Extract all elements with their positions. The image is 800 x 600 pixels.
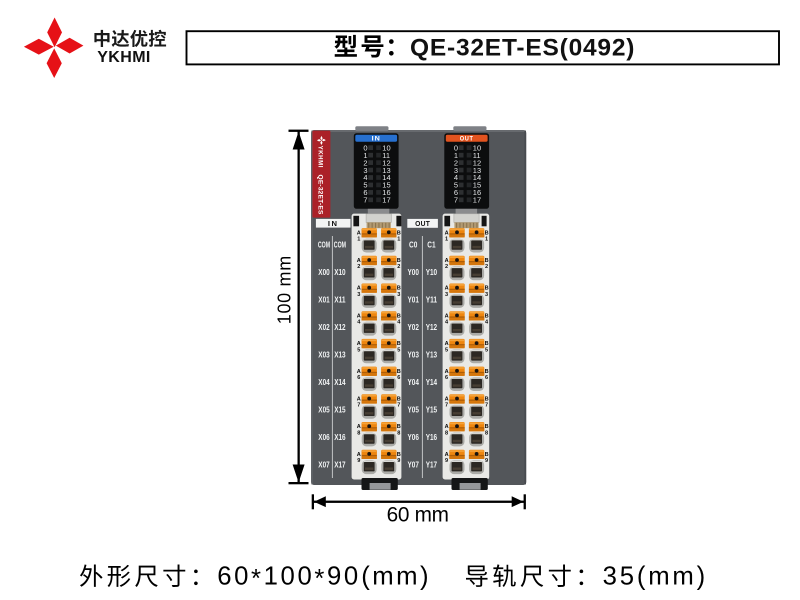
svg-text:X12: X12 bbox=[334, 323, 346, 332]
svg-text:B: B bbox=[397, 313, 401, 319]
svg-text:B: B bbox=[397, 452, 401, 458]
svg-text:X02: X02 bbox=[318, 323, 330, 332]
svg-text:Y02: Y02 bbox=[408, 323, 420, 332]
svg-text:B: B bbox=[397, 397, 401, 403]
svg-text:Y12: Y12 bbox=[426, 323, 438, 332]
svg-text:X00: X00 bbox=[318, 268, 330, 277]
svg-text:B: B bbox=[485, 286, 489, 292]
svg-text:3: 3 bbox=[357, 292, 360, 298]
svg-text:A: A bbox=[445, 424, 449, 430]
svg-text:B: B bbox=[485, 313, 489, 319]
svg-text:3: 3 bbox=[445, 292, 448, 298]
svg-text:A: A bbox=[357, 424, 361, 430]
svg-text:Y16: Y16 bbox=[426, 433, 438, 442]
svg-text:9: 9 bbox=[397, 458, 400, 464]
svg-text:X01: X01 bbox=[318, 296, 330, 305]
svg-text:B: B bbox=[485, 341, 489, 347]
svg-text:Y13: Y13 bbox=[426, 350, 438, 359]
svg-text:B: B bbox=[397, 258, 401, 264]
svg-text:A: A bbox=[357, 286, 361, 292]
svg-text:9: 9 bbox=[485, 458, 488, 464]
svg-text:8: 8 bbox=[357, 430, 360, 436]
svg-text:35(mm): 35(mm) bbox=[603, 563, 706, 591]
svg-text:A: A bbox=[445, 452, 449, 458]
svg-text:1: 1 bbox=[485, 237, 488, 243]
svg-text:9: 9 bbox=[357, 458, 360, 464]
svg-text:8: 8 bbox=[485, 430, 488, 436]
svg-text:Y04: Y04 bbox=[408, 378, 420, 387]
svg-text:B: B bbox=[485, 369, 489, 375]
svg-text:X10: X10 bbox=[334, 268, 346, 277]
svg-text:17: 17 bbox=[473, 196, 481, 205]
svg-text:7: 7 bbox=[397, 403, 400, 409]
svg-text:A: A bbox=[357, 452, 361, 458]
svg-text:60 mm: 60 mm bbox=[387, 504, 449, 527]
svg-text:X06: X06 bbox=[318, 433, 330, 442]
svg-text:1: 1 bbox=[445, 237, 448, 243]
svg-text:Y03: Y03 bbox=[408, 350, 420, 359]
svg-text:B: B bbox=[397, 341, 401, 347]
svg-text:A: A bbox=[357, 230, 361, 236]
svg-text:6: 6 bbox=[485, 375, 488, 381]
svg-text:QE-32ET-ES: QE-32ET-ES bbox=[317, 175, 324, 216]
svg-text:Y14: Y14 bbox=[426, 378, 438, 387]
svg-text:9: 9 bbox=[445, 458, 448, 464]
svg-text:B: B bbox=[485, 452, 489, 458]
svg-text:8: 8 bbox=[445, 430, 448, 436]
svg-text:(mm): (mm) bbox=[361, 563, 428, 591]
svg-text:6: 6 bbox=[445, 375, 448, 381]
svg-text:Y11: Y11 bbox=[426, 296, 438, 305]
svg-text:Y01: Y01 bbox=[408, 296, 420, 305]
svg-text:Y00: Y00 bbox=[408, 268, 420, 277]
svg-text:7: 7 bbox=[357, 403, 360, 409]
svg-text:Y15: Y15 bbox=[426, 405, 438, 414]
svg-text:X03: X03 bbox=[318, 350, 330, 359]
svg-text:3: 3 bbox=[397, 292, 400, 298]
svg-text:A: A bbox=[445, 397, 449, 403]
svg-text:Y05: Y05 bbox=[408, 405, 420, 414]
svg-text:YKHMI: YKHMI bbox=[97, 49, 151, 66]
svg-text:6: 6 bbox=[397, 375, 400, 381]
svg-text:B: B bbox=[485, 397, 489, 403]
svg-text:Y07: Y07 bbox=[408, 460, 420, 469]
svg-text:B: B bbox=[485, 258, 489, 264]
svg-text:X16: X16 bbox=[334, 433, 346, 442]
svg-text:7: 7 bbox=[485, 403, 488, 409]
svg-text:X14: X14 bbox=[334, 378, 346, 387]
svg-text:IN: IN bbox=[328, 219, 339, 228]
svg-text:60*100*90: 60*100*90 bbox=[217, 563, 358, 593]
svg-text:7: 7 bbox=[445, 403, 448, 409]
svg-text:X07: X07 bbox=[318, 460, 330, 469]
svg-text:7: 7 bbox=[454, 196, 458, 205]
svg-text:A: A bbox=[357, 369, 361, 375]
svg-text:A: A bbox=[445, 258, 449, 264]
svg-text:1: 1 bbox=[397, 237, 400, 243]
svg-text:COM: COM bbox=[334, 241, 346, 250]
svg-text:OUT: OUT bbox=[415, 219, 430, 228]
svg-text:100 mm: 100 mm bbox=[274, 256, 294, 325]
svg-text:2: 2 bbox=[357, 264, 360, 270]
svg-text:5: 5 bbox=[397, 347, 400, 353]
svg-text:2: 2 bbox=[397, 264, 400, 270]
svg-text:X04: X04 bbox=[318, 378, 330, 387]
svg-text:A: A bbox=[445, 286, 449, 292]
svg-text:QE-32ET-ES(0492): QE-32ET-ES(0492) bbox=[410, 34, 635, 61]
svg-text:YKHMI: YKHMI bbox=[317, 146, 324, 168]
svg-text:8: 8 bbox=[397, 430, 400, 436]
svg-text:OUT: OUT bbox=[460, 136, 474, 143]
svg-text:C1: C1 bbox=[427, 241, 436, 250]
svg-text:C0: C0 bbox=[409, 241, 418, 250]
svg-text:Y10: Y10 bbox=[426, 268, 438, 277]
svg-text:A: A bbox=[445, 341, 449, 347]
svg-text:A: A bbox=[445, 313, 449, 319]
svg-text:X17: X17 bbox=[334, 460, 346, 469]
svg-text:B: B bbox=[485, 424, 489, 430]
svg-text:B: B bbox=[397, 369, 401, 375]
svg-text:Y06: Y06 bbox=[408, 433, 420, 442]
svg-text:5: 5 bbox=[445, 347, 448, 353]
svg-text:7: 7 bbox=[363, 196, 367, 205]
svg-text:X15: X15 bbox=[334, 405, 346, 414]
svg-text:A: A bbox=[445, 369, 449, 375]
svg-text:COM: COM bbox=[318, 241, 330, 250]
svg-text:B: B bbox=[397, 230, 401, 236]
svg-text:3: 3 bbox=[485, 292, 488, 298]
svg-text:2: 2 bbox=[445, 264, 448, 270]
svg-text:X05: X05 bbox=[318, 405, 330, 414]
svg-text:A: A bbox=[445, 230, 449, 236]
svg-text:B: B bbox=[485, 230, 489, 236]
svg-text:5: 5 bbox=[485, 347, 488, 353]
svg-text:A: A bbox=[357, 341, 361, 347]
svg-text:1: 1 bbox=[357, 237, 360, 243]
svg-text:X13: X13 bbox=[334, 350, 346, 359]
svg-text:6: 6 bbox=[357, 375, 360, 381]
svg-text:X11: X11 bbox=[334, 296, 346, 305]
svg-text:IN: IN bbox=[372, 136, 381, 143]
svg-text:Y17: Y17 bbox=[426, 460, 438, 469]
svg-text:B: B bbox=[397, 286, 401, 292]
svg-text:5: 5 bbox=[357, 347, 360, 353]
svg-text:A: A bbox=[357, 313, 361, 319]
svg-text:2: 2 bbox=[485, 264, 488, 270]
svg-text:17: 17 bbox=[382, 196, 390, 205]
svg-text:A: A bbox=[357, 397, 361, 403]
svg-text:B: B bbox=[397, 424, 401, 430]
svg-text:A: A bbox=[357, 258, 361, 264]
